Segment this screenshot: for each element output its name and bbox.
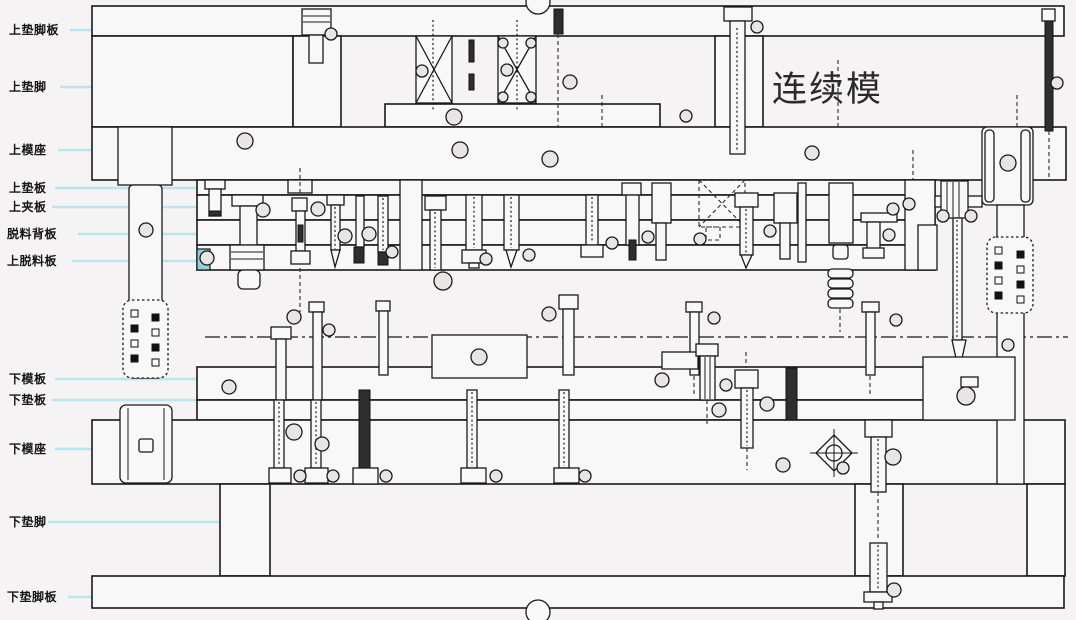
stock-guide-block <box>662 352 698 369</box>
label-lower-die-seat: 下模座 <box>9 441 47 456</box>
center-mark <box>469 74 474 90</box>
label-stripper-backing-plate: 脱料背板 <box>7 226 58 241</box>
center-mark <box>469 40 474 62</box>
upper-die-seat <box>92 127 1066 180</box>
upper-clamp-plate <box>197 195 935 220</box>
lifter-pin-wide <box>559 295 578 375</box>
lower-spacer-left <box>220 484 270 576</box>
die-plates <box>92 0 1066 620</box>
bottom-center-bore <box>526 600 550 620</box>
lower-spacer-edge <box>1027 484 1065 576</box>
progressive-die-drawing: 上垫脚板 上垫脚 上模座 上垫板 上夹板 脱料背板 上脱料板 下模板 下垫板 下… <box>0 0 1076 620</box>
label-upper-die-seat: 上模座 <box>9 142 47 157</box>
label-upper-spacer: 上垫脚 <box>9 79 47 94</box>
label-upper-backing-plate: 上垫板 <box>9 180 47 195</box>
dowel-pin <box>786 368 797 420</box>
label-lower-die-plate: 下模板 <box>9 371 47 386</box>
upper-spacer-left <box>92 36 293 127</box>
label-lower-spacer: 下垫脚 <box>9 514 47 529</box>
guide-post-left <box>118 127 172 483</box>
label-upper-stripper-plate: 上脱料板 <box>7 253 58 268</box>
label-lower-backing-plate: 下垫板 <box>9 392 47 407</box>
stripper-backing-plate <box>197 220 935 245</box>
label-upper-pad-foot-plate: 上垫脚板 <box>9 22 60 37</box>
label-lower-pad-foot-plate: 下垫脚板 <box>7 589 58 604</box>
guide-rod <box>798 183 806 262</box>
label-upper-clamp-plate: 上夹板 <box>9 199 47 214</box>
piercing-punch-dark <box>354 196 364 263</box>
lower-pad-foot-plate <box>92 576 1064 608</box>
plate-labels: 上垫脚板 上垫脚 上模座 上垫板 上夹板 脱料背板 上脱料板 下模板 下垫板 下… <box>7 22 60 604</box>
upper-pad-foot-plate <box>92 6 1064 36</box>
ball-cage-right <box>987 237 1033 313</box>
drawing-title: 连续模 <box>772 70 883 110</box>
spring-ejector <box>941 181 968 372</box>
die-section-view: 上垫脚板 上垫脚 上模座 上垫板 上夹板 脱料背板 上脱料板 下模板 下垫板 下… <box>0 0 1076 620</box>
lifter-pin <box>376 301 390 375</box>
spring-seat-plate <box>385 104 660 127</box>
ball-cage-left <box>123 300 168 378</box>
punch-column <box>400 180 422 270</box>
